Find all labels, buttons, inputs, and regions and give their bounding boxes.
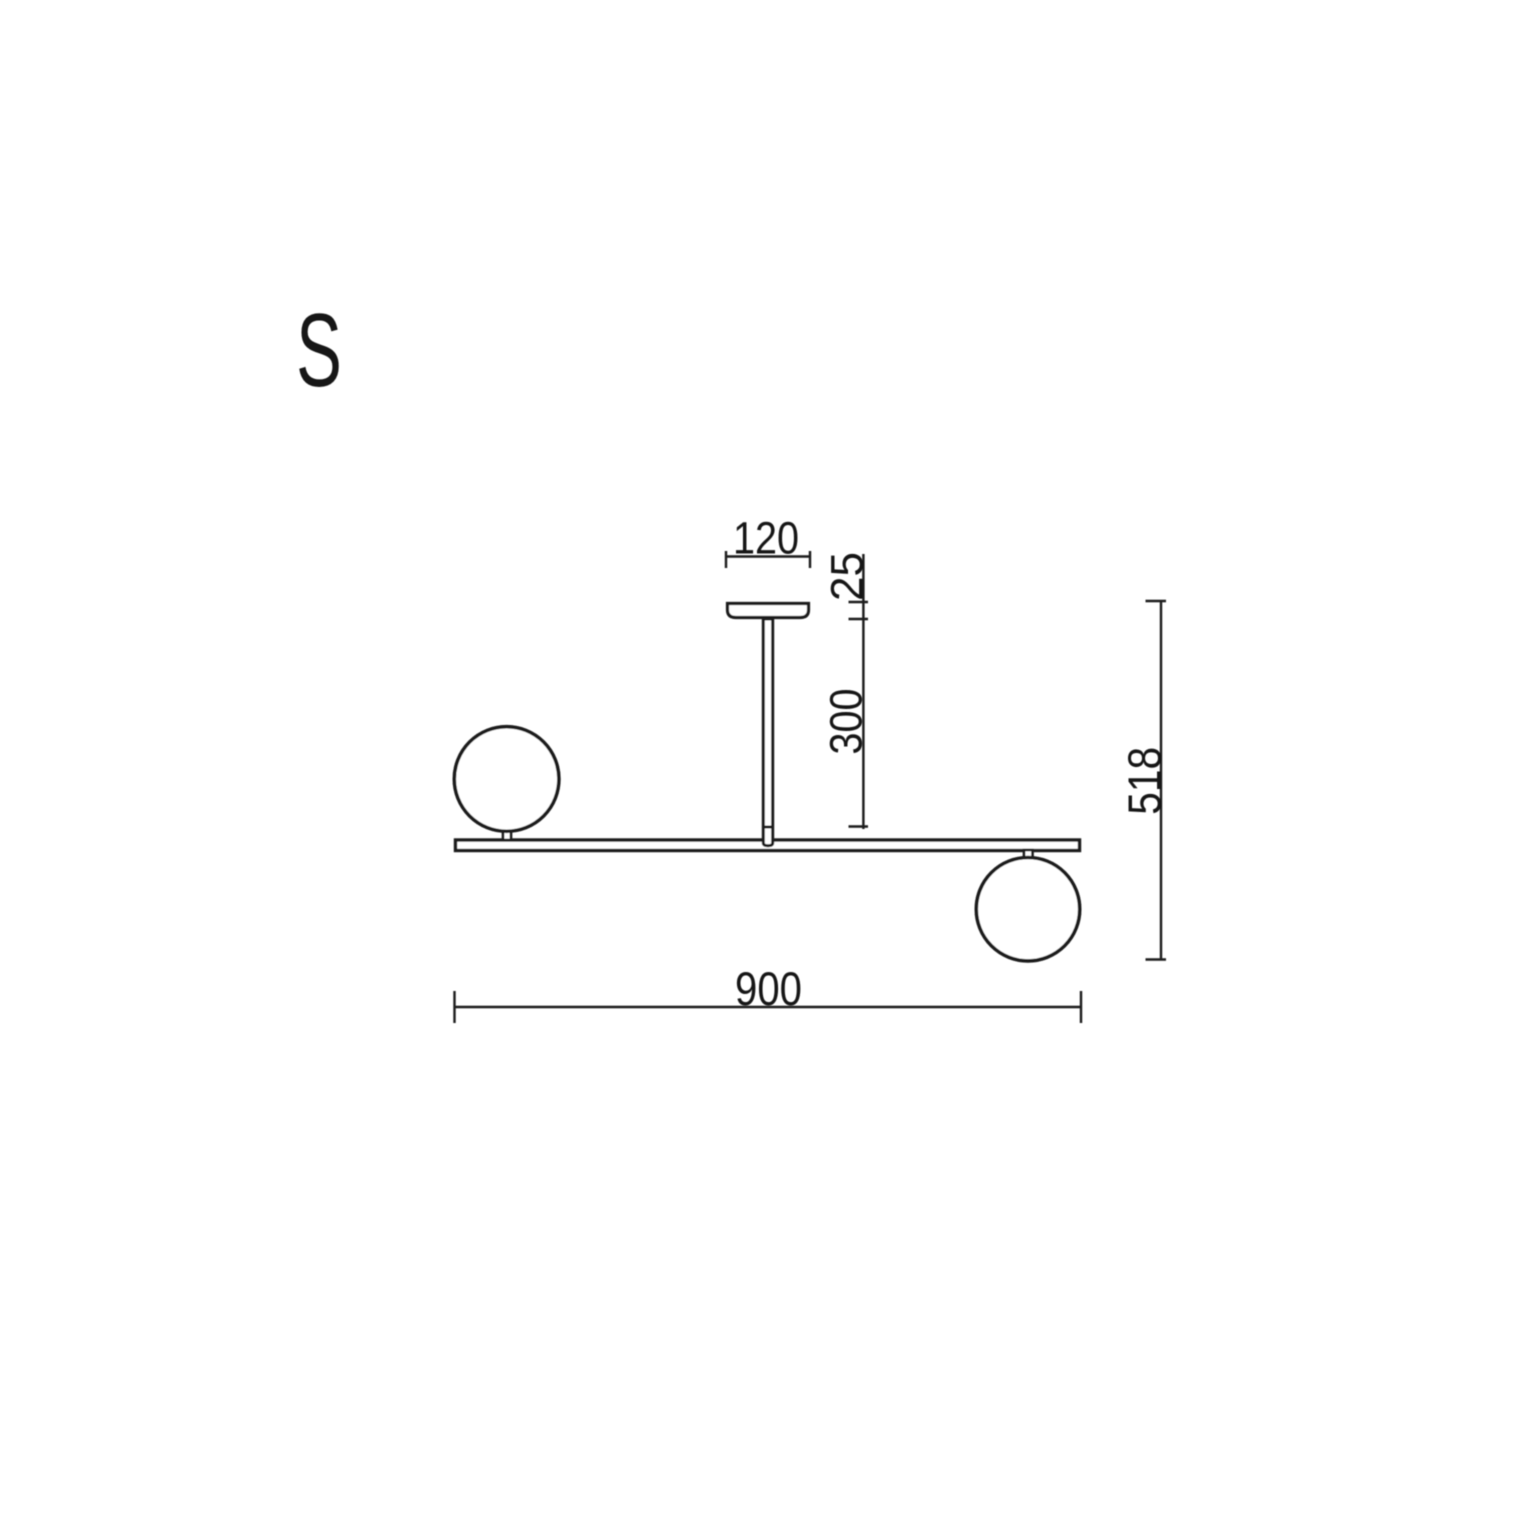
svg-text:25: 25 [823, 552, 872, 601]
svg-text:S: S [296, 292, 342, 409]
svg-text:120: 120 [733, 513, 799, 563]
svg-text:900: 900 [735, 963, 802, 1016]
svg-text:300: 300 [821, 688, 871, 754]
svg-text:518: 518 [1119, 747, 1171, 815]
